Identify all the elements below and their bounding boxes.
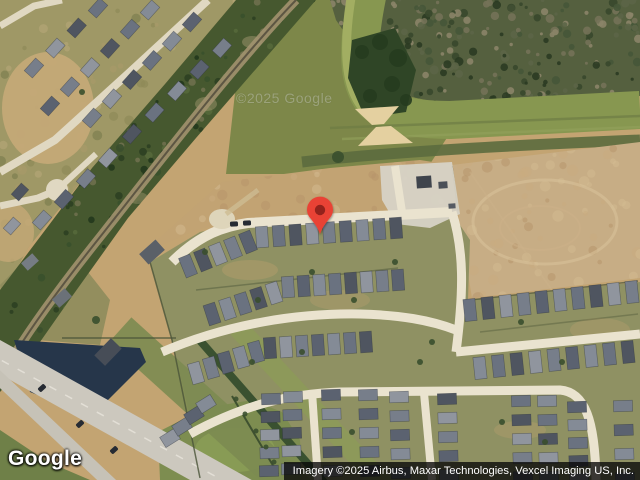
- car: [243, 220, 251, 226]
- speckle: [22, 46, 26, 50]
- speckle: [421, 18, 427, 24]
- speckle: [455, 27, 463, 35]
- speckle: [437, 34, 441, 38]
- speckle: [583, 211, 588, 216]
- speckle: [603, 150, 612, 159]
- tree: [299, 349, 305, 355]
- speckle: [599, 20, 607, 28]
- speckle: [524, 222, 533, 231]
- speckle: [371, 173, 378, 180]
- speckle: [540, 181, 551, 192]
- house: [391, 448, 410, 460]
- speckle: [109, 112, 118, 121]
- speckle: [582, 75, 586, 79]
- speckle: [419, 92, 423, 96]
- map-pin-hole: [315, 205, 325, 215]
- speckle: [537, 62, 541, 66]
- speckle: [422, 72, 429, 79]
- speckle: [562, 202, 566, 206]
- speckle: [115, 192, 123, 200]
- house: [343, 332, 356, 354]
- speckle: [493, 263, 502, 272]
- speckle: [452, 62, 459, 69]
- speckle: [457, 164, 463, 170]
- speckle: [433, 19, 436, 22]
- speckle: [417, 42, 423, 48]
- speckle: [498, 76, 502, 80]
- speckle: [527, 210, 531, 214]
- speckle: [430, 65, 439, 74]
- tree: [92, 316, 100, 324]
- house: [510, 352, 524, 375]
- speckle: [443, 89, 447, 93]
- house: [261, 411, 280, 423]
- house: [263, 337, 276, 359]
- speckle: [452, 73, 455, 76]
- tree: [363, 89, 377, 103]
- speckle: [449, 20, 455, 26]
- speckle: [339, 21, 344, 26]
- house: [538, 414, 557, 426]
- house: [389, 391, 408, 403]
- house: [297, 275, 310, 297]
- speckle: [446, 33, 452, 39]
- house: [547, 348, 561, 371]
- speckle: [224, 56, 228, 60]
- house: [259, 465, 278, 477]
- house: [322, 408, 341, 420]
- speckle: [528, 33, 534, 39]
- speckle: [601, 200, 605, 204]
- house: [373, 218, 386, 240]
- tree: [429, 339, 435, 345]
- speckle: [520, 90, 526, 96]
- tree: [518, 319, 524, 325]
- speckle: [479, 78, 484, 83]
- speckle: [618, 26, 622, 30]
- speckle: [632, 18, 638, 24]
- tree: [389, 49, 407, 67]
- speckle: [469, 75, 473, 79]
- tree: [351, 297, 357, 303]
- speckle: [10, 310, 14, 314]
- speckle: [67, 242, 72, 247]
- tree: [355, 45, 369, 59]
- tree: [202, 249, 208, 255]
- speckle: [463, 27, 469, 33]
- speckle: [552, 76, 560, 84]
- house: [589, 284, 603, 307]
- speckle: [427, 89, 434, 96]
- tree: [400, 94, 412, 106]
- speckle: [503, 54, 507, 58]
- speckle: [162, 142, 166, 146]
- speckle: [440, 69, 447, 76]
- speckle: [110, 66, 117, 73]
- speckle: [481, 88, 488, 95]
- speckle: [609, 224, 613, 228]
- house: [621, 340, 635, 363]
- house: [359, 427, 378, 439]
- house: [282, 445, 301, 457]
- speckle: [482, 204, 489, 211]
- house: [481, 296, 495, 319]
- speckle: [636, 31, 640, 35]
- speckle: [583, 27, 591, 35]
- speckle: [455, 70, 463, 78]
- tree: [249, 359, 255, 365]
- speckle: [102, 245, 106, 249]
- speckle: [469, 266, 479, 276]
- house: [261, 393, 280, 405]
- speckle: [448, 25, 451, 28]
- speckle: [517, 215, 522, 220]
- speckle: [467, 58, 474, 65]
- google-watermark: ©2025 Google: [236, 90, 333, 106]
- speckle: [261, 201, 270, 210]
- house: [360, 446, 379, 458]
- speckle: [482, 162, 493, 173]
- speckle: [420, 50, 425, 55]
- speckle: [493, 1, 501, 9]
- speckle: [118, 63, 124, 69]
- speckle: [546, 14, 555, 23]
- speckle: [332, 201, 337, 206]
- terrain-layer: [0, 0, 640, 480]
- house: [607, 282, 621, 305]
- house: [568, 419, 587, 431]
- speckle: [480, 291, 486, 297]
- speckle: [548, 273, 556, 281]
- speckle: [593, 61, 600, 68]
- tree: [243, 412, 248, 417]
- speckle: [561, 51, 566, 56]
- house: [528, 350, 542, 373]
- house: [517, 292, 531, 315]
- tree: [272, 460, 277, 465]
- tree: [264, 445, 269, 450]
- speckle: [74, 213, 78, 217]
- speckle: [12, 302, 18, 308]
- speckle: [501, 158, 510, 167]
- speckle: [507, 4, 515, 12]
- speckle: [606, 8, 612, 14]
- speckle: [613, 161, 620, 168]
- speckle: [401, 29, 408, 36]
- tree: [37, 327, 43, 333]
- house: [473, 356, 487, 379]
- speckle: [118, 155, 124, 161]
- trailer: [438, 181, 447, 189]
- trailer: [448, 203, 455, 208]
- tree: [309, 269, 315, 275]
- speckle: [545, 198, 549, 202]
- tree: [559, 359, 565, 365]
- speckle: [457, 34, 462, 39]
- speckle: [526, 50, 531, 55]
- speckle: [147, 144, 151, 148]
- house: [512, 433, 531, 445]
- speckle: [616, 72, 619, 75]
- speckle: [488, 275, 498, 285]
- speckle: [518, 171, 526, 179]
- tree: [542, 439, 548, 445]
- satellite-map[interactable]: ©2025 Google Google Imagery ©2025 Airbus…: [0, 0, 640, 480]
- speckle: [530, 94, 533, 97]
- house: [272, 225, 285, 247]
- house: [512, 414, 531, 426]
- tree: [332, 151, 344, 163]
- speckle: [425, 47, 432, 54]
- speckle: [538, 236, 543, 241]
- speckle: [470, 31, 474, 35]
- google-logo[interactable]: Google: [8, 447, 82, 471]
- speckle: [437, 86, 443, 92]
- speckle: [139, 148, 147, 156]
- speckle: [45, 198, 52, 205]
- speckle: [449, 12, 455, 18]
- tree: [79, 89, 85, 95]
- speckle: [510, 43, 513, 46]
- house: [260, 429, 279, 441]
- speckle: [525, 6, 528, 9]
- speckle: [540, 32, 543, 35]
- car: [230, 221, 238, 227]
- speckle: [532, 72, 540, 80]
- speckle: [522, 193, 528, 199]
- speckle: [372, 206, 378, 212]
- attribution-bar: Imagery ©2025 Airbus, Maxar Technologies…: [284, 462, 640, 480]
- speckle: [387, 18, 394, 25]
- house: [359, 331, 372, 353]
- speckle: [628, 51, 633, 56]
- house: [358, 389, 377, 401]
- house: [390, 429, 409, 441]
- speckle: [466, 210, 471, 215]
- speckle: [507, 87, 514, 94]
- yard-dirt-blobs: [222, 260, 278, 280]
- speckle: [590, 233, 597, 240]
- house: [613, 400, 632, 412]
- house: [360, 271, 373, 293]
- speckle: [494, 239, 503, 248]
- speckle: [296, 195, 305, 204]
- house: [283, 391, 302, 403]
- speckle: [609, 145, 617, 153]
- speckle: [555, 12, 558, 15]
- speckle: [469, 48, 477, 56]
- speckle: [622, 201, 630, 209]
- house: [281, 276, 294, 298]
- house: [463, 298, 477, 321]
- speckle: [597, 260, 602, 265]
- house: [565, 346, 579, 369]
- house: [491, 354, 505, 377]
- house: [282, 427, 301, 439]
- satellite-imagery: [0, 0, 640, 480]
- tree: [372, 34, 388, 50]
- speckle: [500, 33, 504, 37]
- speckle: [531, 163, 539, 171]
- house: [327, 333, 340, 355]
- speckle: [631, 78, 634, 81]
- house: [321, 389, 340, 401]
- house: [437, 393, 456, 405]
- speckle: [568, 245, 576, 253]
- speckle: [64, 46, 70, 52]
- house: [356, 219, 369, 241]
- speckle: [528, 60, 533, 65]
- speckle: [601, 83, 607, 89]
- speckle: [528, 72, 532, 76]
- house: [614, 424, 633, 436]
- house: [568, 437, 587, 449]
- tree: [116, 144, 124, 152]
- house: [571, 286, 585, 309]
- house: [389, 217, 402, 239]
- speckle: [491, 12, 499, 20]
- tree: [392, 259, 398, 265]
- house: [553, 288, 567, 311]
- speckle: [546, 54, 552, 60]
- speckle: [518, 69, 524, 75]
- house: [323, 446, 342, 458]
- house: [439, 450, 458, 462]
- speckle: [493, 73, 498, 78]
- speckle: [567, 165, 578, 176]
- speckle: [35, 171, 42, 178]
- speckle: [312, 184, 322, 194]
- house: [438, 431, 457, 443]
- house: [376, 270, 389, 292]
- speckle: [425, 10, 433, 18]
- house: [625, 280, 639, 303]
- speckle: [88, 217, 95, 224]
- speckle: [426, 57, 434, 65]
- house: [328, 273, 341, 295]
- house: [615, 448, 634, 460]
- speckle: [252, 17, 256, 21]
- house: [279, 336, 292, 358]
- speckle: [39, 24, 48, 33]
- trailer: [416, 175, 432, 188]
- speckle: [201, 52, 204, 55]
- house: [289, 224, 302, 246]
- speckle: [440, 19, 447, 26]
- speckle: [405, 37, 412, 44]
- speckle: [587, 169, 595, 177]
- house: [344, 272, 357, 294]
- speckle: [525, 82, 528, 85]
- speckle: [569, 44, 575, 50]
- speckle: [585, 62, 588, 65]
- speckle: [73, 230, 78, 235]
- house: [567, 401, 586, 413]
- house: [359, 408, 378, 420]
- house: [313, 274, 326, 296]
- speckle: [432, 8, 437, 13]
- house: [390, 410, 409, 422]
- speckle: [92, 131, 102, 141]
- speckle: [614, 4, 621, 11]
- tree: [417, 359, 423, 365]
- speckle: [519, 2, 523, 6]
- house: [438, 412, 457, 424]
- speckle: [199, 215, 206, 222]
- house: [260, 447, 279, 459]
- speckle: [194, 55, 199, 60]
- speckle: [267, 43, 273, 49]
- speckle: [523, 218, 528, 223]
- speckle: [618, 13, 624, 19]
- speckle: [241, 178, 249, 186]
- speckle: [560, 9, 564, 13]
- attribution-text: Imagery ©2025 Airbus, Maxar Technologies…: [293, 465, 634, 477]
- speckle: [53, 307, 59, 313]
- speckle: [605, 61, 610, 66]
- tree: [254, 429, 259, 434]
- speckle: [543, 38, 548, 43]
- speckle: [526, 183, 534, 191]
- speckle: [541, 8, 548, 15]
- house: [322, 427, 341, 439]
- speckle: [75, 200, 81, 206]
- speckle: [568, 50, 574, 56]
- speckle: [240, 14, 245, 19]
- speckle: [563, 88, 568, 93]
- house: [602, 342, 616, 365]
- speckle: [481, 30, 487, 36]
- house: [255, 226, 268, 248]
- speckle: [595, 85, 599, 89]
- house: [339, 221, 352, 243]
- speckle: [494, 46, 499, 51]
- speckle: [115, 9, 120, 14]
- tree: [349, 429, 355, 435]
- speckle: [552, 210, 563, 221]
- speckle: [536, 53, 540, 57]
- speckle: [291, 174, 298, 181]
- speckle: [559, 162, 566, 169]
- speckle: [6, 66, 12, 72]
- speckle: [543, 80, 548, 85]
- speckle: [534, 14, 541, 21]
- house: [584, 344, 598, 367]
- speckle: [18, 167, 23, 172]
- speckle: [557, 61, 561, 65]
- speckle: [546, 90, 551, 95]
- speckle: [513, 65, 518, 70]
- speckle: [408, 33, 413, 38]
- speckle: [500, 63, 508, 71]
- speckle: [204, 76, 210, 82]
- speckle: [441, 52, 445, 56]
- speckle: [552, 153, 556, 157]
- speckle: [463, 17, 470, 24]
- speckle: [66, 205, 70, 209]
- speckle: [632, 25, 638, 31]
- speckle: [452, 40, 459, 47]
- speckle: [584, 11, 588, 15]
- house: [511, 395, 530, 407]
- speckle: [234, 29, 238, 33]
- speckle: [209, 195, 215, 201]
- speckle: [314, 172, 320, 178]
- speckle: [546, 160, 555, 169]
- speckle: [135, 158, 140, 163]
- speckle: [62, 165, 72, 175]
- house: [283, 409, 302, 421]
